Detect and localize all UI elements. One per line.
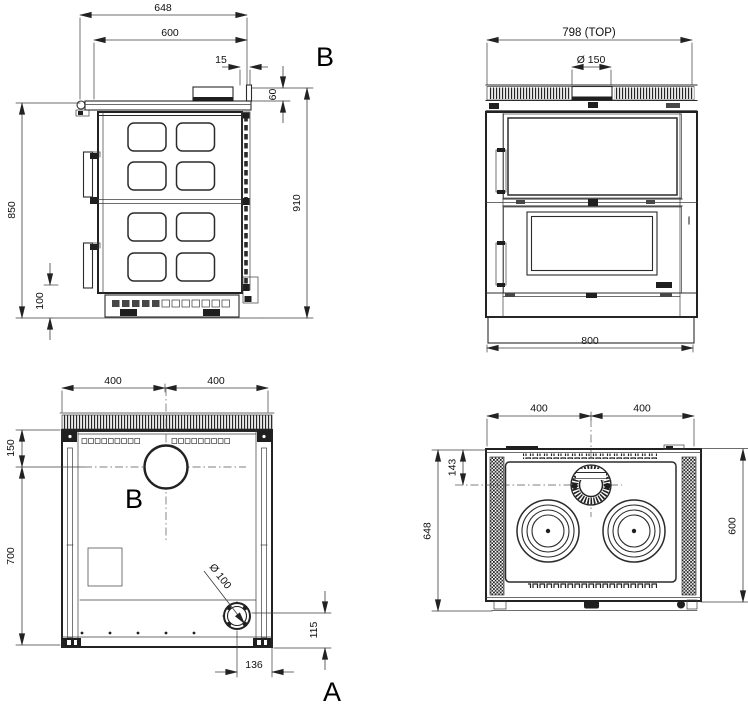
section-label-a: A — [323, 677, 341, 706]
dim-label: 910 — [291, 194, 303, 212]
dim-label: 600 — [161, 27, 179, 39]
plan-serration-top — [523, 454, 657, 460]
dim-label: 400 — [530, 403, 548, 415]
rear-flue-outlet — [145, 446, 188, 489]
section-label-b-side: B — [316, 42, 334, 72]
plan-side-band-left — [490, 457, 504, 595]
plan-flue-collar — [571, 465, 611, 505]
rear-top-rail-hatch — [62, 415, 272, 429]
dim-label: 15 — [215, 54, 227, 66]
dim-label: 800 — [581, 335, 599, 347]
stove-dimension-drawing: 648 600 15 60 910 850 — [0, 0, 748, 706]
plan-side-band-right — [682, 457, 696, 595]
dim-label: 648 — [154, 2, 172, 14]
dim-label: 400 — [104, 375, 122, 387]
plan-serration-bottom — [528, 583, 657, 589]
dim-label: 798 (TOP) — [562, 27, 616, 39]
dim-label: 115 — [308, 621, 320, 638]
dim-label: 648 — [422, 522, 434, 540]
dim-label: 850 — [6, 201, 18, 219]
dim-label: 60 — [267, 89, 279, 101]
dim-label: 136 — [245, 659, 263, 671]
dim-label: 143 — [447, 459, 459, 477]
front-rail-hatch-left — [489, 88, 570, 100]
front-rail-hatch-right — [614, 88, 694, 100]
dim-label: 600 — [727, 517, 739, 535]
dim-label: Ø 150 — [577, 54, 606, 66]
dim-label: 100 — [34, 292, 46, 310]
technical-drawing-sheet: 648 600 15 60 910 850 — [0, 0, 748, 706]
dim-label: 700 — [5, 547, 17, 565]
dim-label: 150 — [5, 439, 17, 457]
front-oven-handle — [656, 282, 672, 288]
dim-label: 400 — [207, 375, 225, 387]
dim-label: 400 — [633, 403, 651, 415]
section-label-b-rear: B — [125, 484, 143, 514]
